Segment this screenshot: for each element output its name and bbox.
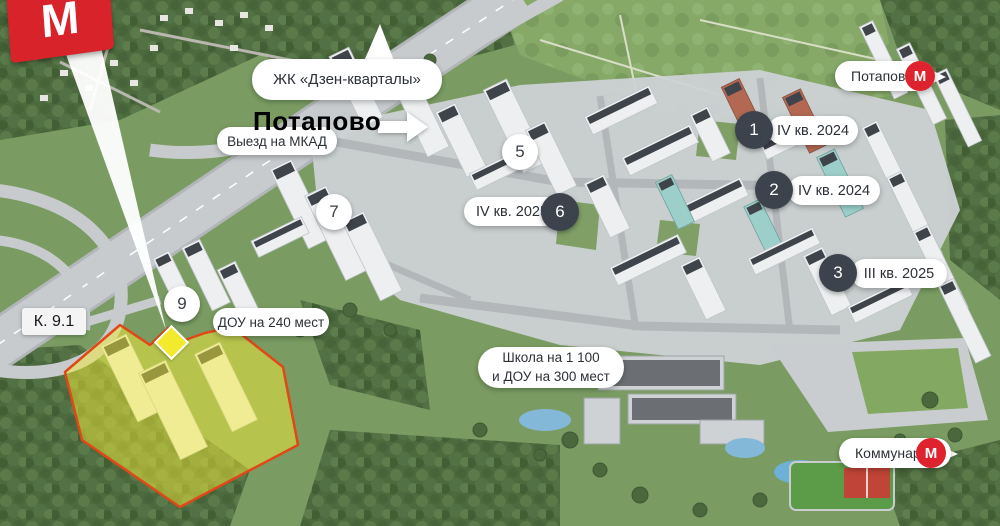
complex-name-callout: ЖК «Дзен-кварталы»: [252, 59, 442, 100]
school-callout-line2: и ДОУ на 300 мест: [492, 368, 610, 387]
metro-icon-potapovo[interactable]: М: [905, 61, 935, 91]
phase-2-quarter-pill[interactable]: IV кв. 2024: [788, 176, 880, 205]
phase-7-marker[interactable]: 7: [316, 194, 352, 230]
metro-icon-kommunarka[interactable]: М: [916, 438, 946, 468]
metro-logo-letter: М: [39, 0, 81, 49]
phase-2-marker[interactable]: 2: [755, 171, 793, 209]
phase-3-marker[interactable]: 3: [819, 254, 857, 292]
building-code-label: К. 9.1: [22, 308, 86, 335]
phase-1-marker[interactable]: 1: [735, 111, 773, 149]
district-label: Потапово: [253, 106, 381, 137]
sports-field: [790, 462, 894, 510]
dou-240-callout: ДОУ на 240 мест: [213, 308, 329, 336]
school-callout: Школа на 1 100 и ДОУ на 300 мест: [478, 347, 624, 388]
phase-5-marker[interactable]: 5: [502, 134, 538, 170]
phase-9-marker[interactable]: 9: [164, 286, 200, 322]
phase-3-quarter-pill[interactable]: III кв. 2025: [851, 259, 947, 288]
phase-6-marker[interactable]: 6: [541, 193, 579, 231]
masterplan-map: .bw{fill:#edeff1;stroke:#c0c5c9;stroke-w…: [0, 0, 1000, 526]
phase-1-quarter-pill[interactable]: IV кв. 2024: [768, 116, 858, 145]
school-callout-line1: Школа на 1 100: [502, 349, 599, 368]
